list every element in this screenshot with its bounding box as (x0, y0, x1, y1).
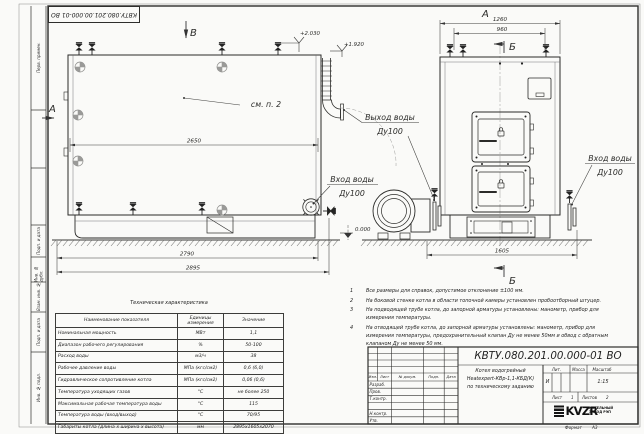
front-view-valves (431, 45, 573, 203)
note-text: На подводящей трубе котла, до запорной а… (366, 306, 622, 322)
tech-cell-units: МПа (кгс/см2) (178, 363, 224, 375)
title-doc-number: КВТУ.080.201.00.000-01 ВО (458, 348, 638, 364)
outlet-label-line1: Выход воды (365, 113, 415, 122)
note-item: 4 На отводящей трубе котла, до запорной … (350, 324, 628, 348)
tech-cell-name: Диапазон рабочего регулирования (56, 339, 178, 351)
note-item: 2 На боковой стенке котла в области топо… (350, 297, 628, 305)
outlet-label-line2: Ду100 (376, 127, 403, 136)
tech-cell-name: Температура уходящих газов (56, 386, 178, 398)
tech-row: Рабочее давление водыМПа (кгс/см2)0,6 (6… (56, 363, 284, 375)
rotated-doc-number-box: КВТУ.080.201.00.000-01 ВО (48, 6, 140, 23)
staff-nkontr: Н.контр. (370, 411, 388, 416)
note-text: На отводящей трубе котла, до запорной ар… (366, 324, 622, 348)
tech-cell-name: Номинальная мощность (56, 328, 178, 340)
sheets-number: 2 (606, 395, 609, 400)
note-number: 4 (350, 324, 366, 348)
staff-prov: Пров. (370, 389, 382, 394)
logo-mark-icon (554, 405, 564, 417)
tech-cell-units: °С (178, 386, 224, 398)
elevation-ground: 0.000 (355, 227, 371, 233)
tech-cell-units: МПа (кгс/см2) (178, 375, 224, 387)
tech-row: Температура воды (вход/выход)°С70/95 (56, 410, 284, 422)
tech-cell-units: % (178, 339, 224, 351)
tech-header-row: Наименование показателя Единицы измерени… (56, 314, 284, 328)
sheet-number: 1 (571, 395, 574, 400)
staff-razrab: Разраб. (370, 382, 386, 387)
note-item: 3 На подводящей трубе котла, до запорной… (350, 306, 628, 322)
format-note: Формат А3 (565, 425, 598, 430)
dim-front-inner: 960 (497, 27, 508, 33)
col-list: Лист (378, 375, 392, 379)
lower-door (472, 166, 534, 212)
company-line2: ЗАВОД РЭП (589, 410, 613, 414)
dim-front-base: 1605 (495, 249, 510, 255)
tech-cell-value: 38 (224, 351, 284, 363)
tech-row: Габариты котла (длина х ширина х высота)… (56, 422, 284, 434)
tech-cell-value: не более 250 (224, 386, 284, 398)
sheet-label: Лист (552, 395, 562, 400)
upper-door (472, 112, 534, 162)
section-label-a-side: А (48, 104, 56, 115)
section-label-v: В (190, 28, 197, 39)
note-number: 3 (350, 306, 366, 322)
dim-side-inner: 2650 (187, 139, 202, 145)
dim-front-overall: 1260 (493, 17, 508, 23)
dim-side-overall: 2895 (186, 266, 201, 272)
tech-header-units: Единицы измерения (178, 314, 224, 328)
boiler-side-view (64, 55, 396, 238)
scale-value: 1:15 (592, 379, 614, 385)
tech-row: Расход водым3/ч38 (56, 351, 284, 363)
section-label-b-top: Б (509, 42, 516, 53)
format-label: Формат (565, 425, 582, 430)
col-podp: Подп. (423, 375, 444, 379)
col-ndocum: № докум. (392, 375, 424, 379)
tech-row: Диапазон рабочего регулирования%50-100 (56, 339, 284, 351)
note-text: Все размеры для справок, допустимое откл… (366, 287, 622, 295)
tech-row: Номинальная мощностьМВт1,1 (56, 328, 284, 340)
note-number: 2 (350, 297, 366, 305)
col-izm: Изм. (368, 375, 378, 379)
dim-side-base: 2790 (180, 252, 195, 258)
front-right-fitting (568, 204, 576, 230)
tech-header-value: Значение (224, 314, 284, 328)
inlet-side-label-line2: Ду100 (338, 189, 365, 198)
mass-header: Масса (570, 367, 587, 372)
tech-row: Гидравлическое сопротивление котлаМПа (к… (56, 375, 284, 387)
tech-cell-name: Расход воды (56, 351, 178, 363)
scale-header: Масштаб (587, 367, 617, 372)
company-name: КОТЕЛЬНЫЙ ЗАВОД РЭП (589, 406, 613, 415)
note-number: 1 (350, 287, 366, 295)
format-value: А3 (592, 425, 598, 430)
tech-header-name: Наименование показателя (56, 314, 178, 328)
note-item: 1 Все размеры для справок, допустимое от… (350, 287, 628, 295)
tech-cell-value: 1,1 (224, 328, 284, 340)
front-left-fitting (433, 202, 441, 230)
tech-cell-value: 0,6 (6,0) (224, 363, 284, 375)
tech-cell-name: Рабочее давление воды (56, 363, 178, 375)
tech-cell-units: м3/ч (178, 351, 224, 363)
lit-value: И (543, 379, 552, 385)
inlet-front-label-line1: Вход воды (588, 154, 632, 163)
drain-tap (323, 207, 335, 214)
tech-cell-value: 50-100 (224, 339, 284, 351)
lit-header: Лит. (543, 367, 570, 372)
tech-cell-value: 115 (224, 398, 284, 410)
tech-table-title: Техническая характеристика (55, 300, 283, 306)
staff-tkontr: Т.контр. (370, 396, 387, 401)
product-name-line1: Котел водогрейный (459, 368, 542, 376)
product-name-line3: по техническому заданию (459, 384, 542, 392)
tech-row: Максимальная рабочая температура воды°С1… (56, 398, 284, 410)
product-name-line2: Heatexpert-КВр-1,1-КБД(К) (459, 376, 542, 384)
section-label-b-bottom: Б (509, 276, 516, 287)
tech-cell-units: мм (178, 422, 224, 434)
tech-cell-value: 0,06 (0,6) (224, 375, 284, 387)
blower-fan (373, 190, 430, 239)
sheets-label: Листов (582, 395, 597, 400)
outlet-elbow (321, 58, 396, 166)
tech-cell-name: Максимальная рабочая температура воды (56, 398, 178, 410)
margin-field-perv-primen: Перв. примен. (32, 6, 45, 110)
note-text: На боковой стенке котла в области топочн… (366, 297, 622, 305)
side-view-valves (75, 43, 281, 215)
tech-cell-units: °С (178, 410, 224, 422)
elevation-outlet: +1.920 (344, 42, 365, 48)
margin-field-inv-podl: Инв. № подл. (32, 352, 45, 424)
margin-field-podp-data-2: Подп. и дата (32, 312, 45, 352)
margin-field-vzam-inv: Взам. инв. № (32, 282, 45, 312)
tech-table: Наименование показателя Единицы измерени… (55, 313, 284, 434)
tech-cell-value: 2895х1605х2070 (224, 422, 284, 434)
boiler-front-view (433, 44, 576, 248)
notes-block: 1 Все размеры для справок, допустимое от… (350, 287, 628, 349)
see-note-callout: см. п. 2 (251, 100, 281, 109)
ground-hatch (51, 240, 588, 246)
staff-utv: Утв. (370, 418, 378, 423)
inlet-front-label-line2: Ду100 (596, 168, 623, 177)
margin-field-inv-dubl: Инв. № дубл. (32, 257, 45, 282)
tech-row: Температура уходящих газов°Сне более 250 (56, 386, 284, 398)
side-inlet-flange (303, 199, 319, 215)
view-label-a: А (481, 9, 489, 20)
tech-cell-units: °С (178, 398, 224, 410)
product-name: Котел водогрейный Heatexpert-КВр-1,1-КБД… (459, 368, 542, 392)
tech-cell-name: Температура воды (вход/выход) (56, 410, 178, 422)
tech-cell-value: 70/95 (224, 410, 284, 422)
tech-cell-name: Габариты котла (длина х ширина х высота) (56, 422, 178, 434)
section-marks (42, 21, 504, 277)
elevation-top: +2.030 (300, 31, 321, 37)
tech-cell-name: Гидравлическое сопротивление котла (56, 375, 178, 387)
lifting-marks (73, 62, 227, 215)
tech-cell-units: МВт (178, 328, 224, 340)
drawing-sheet: { "title_block": { "doc_number": "КВТУ.0… (0, 0, 644, 430)
margin-field-podp-data-1: Подп. и дата (32, 225, 45, 257)
elevation-marks (281, 37, 353, 240)
col-data: Дата (444, 375, 458, 379)
rotated-doc-number: КВТУ.080.201.00.000-01 ВО (51, 11, 137, 18)
inlet-side-label-line1: Вход воды (330, 175, 374, 184)
